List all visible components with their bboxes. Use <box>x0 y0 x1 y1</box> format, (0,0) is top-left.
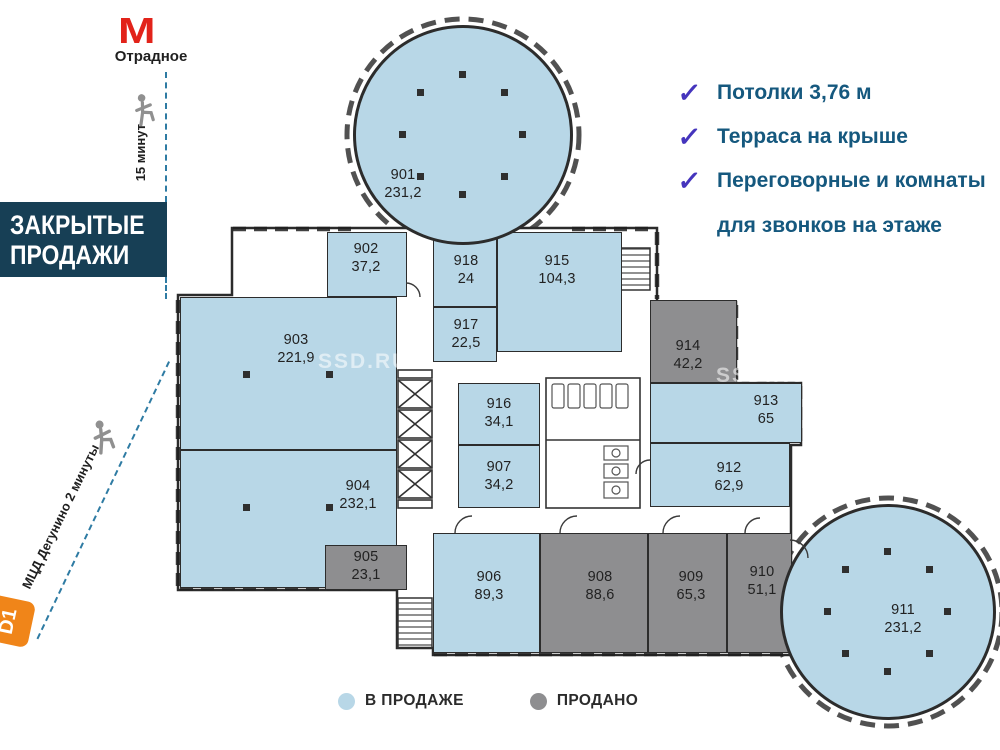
mcd-d1-label: D1 <box>0 606 23 636</box>
room-label-904: 904232,1 <box>308 477 408 513</box>
feature-text-continued: для звонков на этаже <box>717 213 942 239</box>
check-icon: ✓ <box>677 168 719 194</box>
metro-station-label: Отрадное <box>95 48 207 65</box>
room-label-905: 90523,1 <box>316 548 416 584</box>
banner-line1: ЗАКРЫТЫЕ <box>10 210 143 240</box>
room-label-908: 90888,6 <box>550 568 650 604</box>
feature-text: Переговорные и комнаты <box>717 168 986 194</box>
available-dot <box>338 693 355 710</box>
room-label-913: 91365 <box>716 392 816 428</box>
room-label-911: 911231,2 <box>853 601 953 637</box>
legend-label: В ПРОДАЖЕ <box>365 692 464 710</box>
room-label-916: 91634,1 <box>449 395 549 431</box>
legend-label: ПРОДАНО <box>557 692 638 710</box>
feature-item: ✓ Потолки 3,76 м <box>678 80 872 106</box>
room-label-901: 901231,2 <box>353 166 453 202</box>
watermark: SSD.RU <box>716 364 807 388</box>
sold-dot <box>530 693 547 710</box>
room-label-910: 91051,1 <box>712 563 812 599</box>
banner-line2: ПРОДАЖИ <box>10 240 143 270</box>
check-icon: ✓ <box>677 80 719 106</box>
metro-walk-time-label: 15 минут <box>133 124 148 181</box>
feature-item: ✓ Терраса на крыше <box>678 124 908 150</box>
check-icon: ✓ <box>677 124 719 150</box>
room-label-912: 91262,9 <box>679 459 779 495</box>
closed-sales-banner: ЗАКРЫТЫЕ ПРОДАЖИ <box>0 202 167 277</box>
room-label-902: 90237,2 <box>316 240 416 276</box>
feature-item: ✓ Переговорные и комнаты <box>678 168 986 194</box>
room-label-906: 90689,3 <box>439 568 539 604</box>
room-label-907: 90734,2 <box>449 458 549 494</box>
floor-plan: 901231,2 90237,2 903221,9 904232,1 90523… <box>0 0 1000 750</box>
legend-item-available: В ПРОДАЖЕ <box>338 692 464 710</box>
legend-item-sold: ПРОДАНО <box>530 692 638 710</box>
metro-icon: М <box>118 10 156 52</box>
feature-text: Терраса на крыше <box>717 124 908 150</box>
legend: В ПРОДАЖЕ ПРОДАНО <box>338 692 638 710</box>
room-label-917: 91722,5 <box>416 316 516 352</box>
room-label-918: 91824 <box>416 252 516 288</box>
room-label-915: 915104,3 <box>507 252 607 288</box>
watermark: SSD.RU <box>318 350 409 374</box>
feature-text: Потолки 3,76 м <box>717 80 872 106</box>
